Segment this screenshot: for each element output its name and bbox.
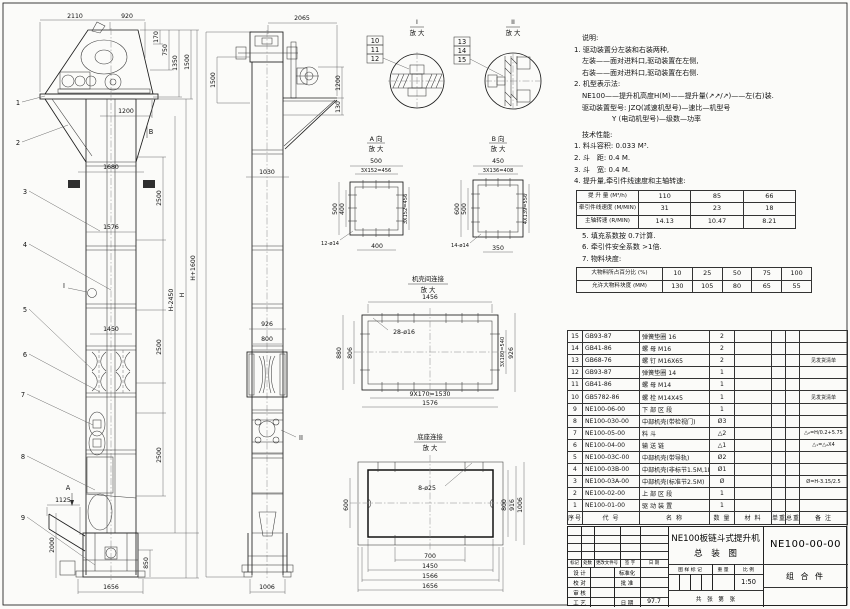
bom-material [735,476,772,488]
bom-unit-weight [772,379,786,391]
spec-value: 85 [691,190,743,203]
bom-unit-weight [772,464,786,476]
bom-note [800,415,848,427]
bom-code: NE100-02-00 [583,488,640,500]
bom-material [735,355,772,367]
date-value: 97.7 [640,598,668,605]
bom-no: 9 [568,403,583,415]
bom-code: NE100-05-00 [583,427,640,439]
dim-b-holes: 14-ø14 [451,243,469,249]
spec-value: 105 [692,280,722,293]
balloon-11: 11 [371,46,379,54]
balloon-14: 14 [458,47,466,55]
bom-unit-weight [772,415,786,427]
bom-total-weight [786,464,800,476]
bom-code: NE100-030-00 [583,415,640,427]
detail-case-joint-view: 机壳间连接 放 大 1456 28-ø16 880 806 3X180=540 … [336,274,515,407]
bom-qty: 2 [710,355,735,367]
bom-material [735,403,772,415]
bom-header-row: 序号代 号名 称数 量材 料单重总重备 注 [568,512,848,524]
bom-qty: 1 [710,500,735,512]
bom-total-weight [786,439,800,451]
bom-part-name: 输 送 链 [640,439,710,451]
rev-h-mark: 标记 [568,560,581,566]
bom-code: GB93-87 [583,367,640,379]
note-line: 2. 机型表示法: [568,79,848,91]
tech-line: 6. 牵引件安全系数 >1倍. [568,242,848,254]
bom-row: 1NE100-01-00驱 动 装 置1 [568,500,848,512]
title-block: 标记 处数 更改文件号 签 字 日 期 设 计 标准化 校 对 批 准 审 核 … [567,526,847,606]
dim-case-holes: 28-ø16 [393,329,415,336]
bom-code: NE100-01-00 [583,500,640,512]
spec-label: 提 升 量 (M³/h) [577,190,639,203]
dim-base-holes: 8-ø25 [418,485,436,492]
bom-no: 8 [568,415,583,427]
bom-part-name: 中部机壳(带导轨) [640,451,710,463]
bom-row: 2NE100-02-00上 部 区 段1 [568,488,848,500]
bom-row: 10GB5782-86螺 栓 M14X451见发货清单 [568,391,848,403]
bom-total-weight [786,379,800,391]
part-type: 组 合 件 [763,571,848,582]
mark-label: 图 样 标 记 [668,566,712,573]
spec-value: 55 [782,280,812,293]
dim-base-1450: 1450 [422,563,438,570]
detail-b-view: B 向 放 大 450 3X136=408 600 500 4X139=556 … [451,134,529,252]
bom-unit-weight [772,439,786,451]
note-line: Y (电动机型号)—级数—功率 [568,114,848,126]
dim-1350: 1350 [172,55,179,71]
bom-part-name: 螺 栓 M14X45 [640,391,710,403]
bom-material [735,427,772,439]
bom-total-weight [786,367,800,379]
bom-total-weight [786,427,800,439]
dim-case-1576: 1576 [422,400,438,407]
spec-value: 130 [663,280,693,293]
dim-case-540: 3X180=540 [500,337,506,367]
detail-i-title: I [416,18,418,26]
bom-code: GB68-76 [583,355,640,367]
bom-note: Ø=H-3.15/2.5 [800,476,848,488]
bom-part-name: 弹簧垫圈 16 [640,331,710,343]
note-line: 1. 驱动装置分左装和右装两种, [568,45,848,57]
bom-part-name: 螺 钉 M16X65 [640,355,710,367]
spec-value: 100 [782,268,812,281]
bom-code: GB41-86 [583,379,640,391]
bom-code: NE100-03C-00 [583,451,640,463]
bom-note [800,500,848,512]
spec-label: 大物料所占百分比 (%) [577,268,663,281]
tech-heading: 技术性能: [568,130,848,142]
detail-i-magnify: 放 大 [410,28,425,37]
detail-b-magnify: 放 大 [491,144,506,153]
inspection-door [87,457,113,493]
role-review: 审 核 [569,589,590,597]
bom-unit-weight [772,331,786,343]
bom-no: 14 [568,343,583,355]
bom-total-weight [786,343,800,355]
bom-qty: Ø2 [710,451,735,463]
bom-row: 8NE100-030-00中部机壳(带检视门)Ø3 [568,415,848,427]
balloon-box-10-12: 10 11 12 [367,36,409,69]
dim-b-556: 4X139=556 [523,194,529,224]
bom-code: NE100-03B-00 [583,464,640,476]
bom-part-name: 弹簧垫圈 14 [640,367,710,379]
detail-ii-magnify: 放 大 [506,28,521,37]
bom-material [735,439,772,451]
bom-part-name: 螺 母 M14 [640,379,710,391]
tech-line: 1. 料斗容积: 0.033 M³. [568,141,848,153]
drawing-sheet: { "notes": { "heading": "说明:", "lines": … [0,0,850,609]
dim-1125: 1125 [55,497,71,504]
balloon-7: 7 [21,391,25,399]
drawing-number: NE100-00-00 [763,539,848,550]
bom-unit-weight [772,476,786,488]
dim-800: 800 [261,336,273,343]
scale-value: 1:50 [734,578,763,586]
dim-case-880: 880 [336,347,343,359]
detail-base-joint-view: 底座连接 放 大 8-ø25 600 800 916 1006 700 1450… [343,432,524,592]
bom-qty: 1 [710,403,735,415]
bom-note: 见发货清单 [800,391,848,403]
rev-h-sign: 签 字 [620,560,640,566]
detail-a-title: A 向 [370,134,383,143]
bom-part-name: 驱 动 装 置 [640,500,710,512]
bom-material [735,391,772,403]
bom-no: 13 [568,355,583,367]
bom-row: 7NE100-05-00料 斗△2△₂=H/0.2+5.75 [568,427,848,439]
tech-line: 4. 提升量,牵引件线速度和主轴转速: [568,176,848,188]
balloon-box-13-15: 13 14 15 [454,37,503,76]
dim-case-806: 806 [347,347,354,359]
bom-row: 3NE100-03A-00中部机壳(标准节2.5M)ØØ=H-3.15/2.5 [568,476,848,488]
bom-material [735,451,772,463]
role-approve: 批 准 [614,579,640,587]
bom-no: 12 [568,367,583,379]
bom-row: 4NE100-03B-00中部机壳(非标节1.5M,1M)Ø1 [568,464,848,476]
bom-header-cell: 名 称 [640,512,710,524]
bom-total-weight [786,403,800,415]
bom-header-cell: 序号 [568,512,583,524]
bom-row: 13GB68-76螺 钉 M16X652见发货清单 [568,355,848,367]
bom-note [800,331,848,343]
role-date-label: 日 期 [614,599,640,607]
bom-material [735,331,772,343]
bom-unit-weight [772,355,786,367]
revision-area: 标记 处数 更改文件号 签 字 日 期 设 计 标准化 校 对 批 准 审 核 … [568,527,668,607]
title-area: NE100板链斗式提升机 总 装 图 图 样 标 记 重 量 比 例 1:50 … [668,527,763,607]
bom-unit-weight [772,488,786,500]
boot-section [60,533,145,577]
bom-no: 11 [568,379,583,391]
dim-base-600: 600 [343,499,350,511]
bom-note [800,343,848,355]
side-boot [242,533,293,577]
bom-total-weight [786,500,800,512]
dim-1006: 1006 [259,584,275,591]
front-dim-lines [40,20,199,594]
dim-a-456r: 3X152=456 [403,194,409,224]
spec-value: 75 [752,268,782,281]
bom-qty: 2 [710,343,735,355]
note-line: 右装——面对进料口,驱动装置在右侧. [568,68,848,80]
detail-case-title: 机壳间连接 [412,274,445,283]
dim-1200s: 1200 [335,75,342,91]
side-dim-lines [217,23,344,594]
bom-unit-weight [772,500,786,512]
bom-part-name: 中部机壳(标准节2.5M) [640,476,710,488]
bom-material [735,415,772,427]
dim-926: 926 [261,321,273,328]
spec-row: 大物料所占百分比 (%)10255075100 [577,268,812,281]
detail-i-label: I [63,282,65,290]
detail-ii-view: II 放 大 13 14 15 [454,18,541,109]
dim-a-500l: 500 [332,203,339,215]
bom-no: 10 [568,391,583,403]
dim-base-916: 916 [509,499,516,511]
spec-row: 允许大物料块度 (MM)130105806555 [577,280,812,293]
rev-h-doc: 更改文件号 [594,560,620,566]
bom-note: 见发货清单 [800,355,848,367]
dim-1450: 1450 [103,326,119,333]
balloon-12: 12 [371,55,379,63]
balloon-10: 10 [371,37,379,45]
role-process: 工 艺 [569,599,590,607]
dim-130: 130 [335,101,342,113]
dim-case-1456: 1456 [422,294,438,301]
bom-row: 9NE100-06-00下 部 区 段1 [568,403,848,415]
scale-label: 比 例 [734,566,763,573]
spec-value: 25 [692,268,722,281]
drawing-title-line1: NE100板链斗式提升机 [668,532,763,544]
bom-row: 12GB93-87弹簧垫圈 141 [568,367,848,379]
bom-material [735,464,772,476]
weight-label: 重 量 [712,566,734,573]
bom-code: GB93-87 [583,331,640,343]
dim-h1600: H+1600 [190,255,197,281]
bom-material [735,343,772,355]
side-elevation-view: II 2065 1500 1200 130 1030 926 800 1006 [206,15,344,594]
bom-note [800,464,848,476]
bom-total-weight [786,415,800,427]
balloon-13: 13 [458,38,466,46]
spec-value: 23 [691,203,743,216]
spec-value: 66 [743,190,795,203]
spec-value: 8.21 [743,215,795,228]
bom-no: 7 [568,427,583,439]
detail-case-magnify: 放 大 [421,285,436,294]
detail-ii-pointer: II [299,434,303,442]
bom-code: GB5782-86 [583,391,640,403]
bom-unit-weight [772,427,786,439]
number-area: NE100-00-00 组 合 件 [763,527,848,607]
dim-a-456t: 3X152=456 [361,168,391,174]
spec-value: 50 [722,268,752,281]
bom-note: △₂=H/0.2+5.75 [800,427,848,439]
dim-1656: 1656 [103,584,119,591]
bom-material [735,379,772,391]
spec-value: 110 [639,190,691,203]
bom-note: △₁=△₂X4 [800,439,848,451]
bom-note [800,403,848,415]
balloon-6: 6 [23,351,27,359]
dim-2000: 2000 [49,537,56,553]
bolt-ticks [378,462,483,545]
bom-no: 15 [568,331,583,343]
dim-850: 850 [143,557,150,569]
spec-value: 31 [639,203,691,216]
spec-row: 牵引件线速度 (M/MIN)312318 [577,203,796,216]
front-elevation-view: 2110 920 170 750 1350 1500 1200 1680 157… [16,13,199,594]
bom-total-weight [786,355,800,367]
dim-a-400l: 400 [339,203,346,215]
view-arrow-b: B [149,128,154,136]
bom-qty: 1 [710,379,735,391]
detail-ii-title: II [511,18,515,26]
bom-no: 5 [568,451,583,463]
dim-1500: 1500 [184,54,191,70]
bom-material [735,367,772,379]
role-std: 标准化 [614,569,640,577]
bom-unit-weight [772,451,786,463]
dim-b-350: 350 [492,245,504,252]
dim-750: 750 [162,44,169,56]
dim-1576: 1576 [103,224,119,231]
notes-panel: 说明: 1. 驱动装置分左装和右装两种, 左装——面对进料口,驱动装置在左侧, … [568,33,848,293]
detail-i-marker [88,289,97,298]
bom-total-weight [786,451,800,463]
bom-unit-weight [772,391,786,403]
bom-qty: 1 [710,367,735,379]
bom-header-cell: 总重 [786,512,800,524]
bom-part-name: 下 部 区 段 [640,403,710,415]
dim-base-1656: 1656 [422,583,438,590]
spec-value: 10 [663,268,693,281]
bom-row: 14GB41-86螺 母 M162 [568,343,848,355]
note-line: 左装——面对进料口,驱动装置在左侧, [568,56,848,68]
balloon-2: 2 [16,139,20,147]
side-sprocket-section [252,413,283,453]
bom-part-name: 料 斗 [640,427,710,439]
bom-code: GB41-86 [583,343,640,355]
bom-part-name: 上 部 区 段 [640,488,710,500]
tech-line: 3. 斗 宽: 0.4 M. [568,165,848,177]
bom-qty: Ø1 [710,464,735,476]
bom-qty: △2 [710,427,735,439]
bom-part-name: 中部机壳(带检视门) [640,415,710,427]
bom-total-weight [786,331,800,343]
spec-label: 允许大物料块度 (MM) [577,280,663,293]
sheet-label: 共 张 第 张 [668,595,763,603]
side-door [252,458,283,493]
bom-qty: 1 [710,488,735,500]
bom-no: 6 [568,439,583,451]
role-check: 校 对 [569,579,590,587]
bolt-ticks [471,178,525,239]
detail-b-title: B 向 [492,134,505,143]
spec-value: 10.47 [691,215,743,228]
bom-row: 11GB41-86螺 母 M141 [568,379,848,391]
dim-b-408: 3X136=408 [483,168,513,174]
rev-h-count: 处数 [581,560,594,566]
spec-value: 65 [752,280,782,293]
take-up-wheel [88,494,112,530]
dim-a-holes: 12-ø14 [321,241,339,247]
spec-value: 14.13 [639,215,691,228]
bom-no: 4 [568,464,583,476]
bucket-outline [259,512,276,536]
spec-value: 18 [743,203,795,216]
bom-unit-weight [772,367,786,379]
balloon-8: 8 [21,453,25,461]
bom-note [800,451,848,463]
bom-no: 3 [568,476,583,488]
dim-1030: 1030 [259,169,275,176]
wall-bracket-right [143,180,155,188]
bom-header-cell: 代 号 [583,512,640,524]
notes-heading: 说明: [568,33,848,45]
balloon-4: 4 [23,241,27,249]
bom-header-cell: 单重 [772,512,786,524]
capacity-speed-table: 提 升 量 (M³/h)1108566牵引件线速度 (M/MIN)312318主… [576,190,796,229]
bom-qty: △1 [710,439,735,451]
bom-material [735,500,772,512]
dim-h-2450: H-2450 [168,289,175,312]
drawing-title-line2: 总 装 图 [668,547,763,559]
take-up-bolts [89,412,105,455]
dim-a-400b: 400 [371,243,383,250]
dim-2500b: 2500 [156,339,163,355]
dim-base-700: 700 [424,553,436,560]
bom-part-name: 螺 母 M16 [640,343,710,355]
detail-a-view: A 向 放 大 500 3X152=456 500 400 3X152=456 … [321,134,409,250]
balloon-9: 9 [21,514,25,522]
bom-header-cell: 数 量 [710,512,735,524]
bom-note [800,379,848,391]
dim-2065: 2065 [294,15,310,22]
spec-row: 提 升 量 (M³/h)1108566 [577,190,796,203]
bom-unit-weight [772,403,786,415]
dim-920: 920 [121,13,133,20]
bom-code: NE100-03A-00 [583,476,640,488]
bill-of-materials: 15GB93-87弹簧垫圈 16214GB41-86螺 母 M16213GB68… [567,330,847,525]
dim-170: 170 [153,31,160,43]
bom-material [735,488,772,500]
bom-total-weight [786,488,800,500]
dim-b-450: 450 [492,158,504,165]
note-line: NE100——提升机高度H(M)——提升量(↗↗/↗)——左(右)装. [568,91,848,103]
bom-qty: Ø [710,476,735,488]
tech-line: 2. 斗 距: 0.4 M. [568,153,848,165]
bom-qty: 2 [710,331,735,343]
bom-row: 5NE100-03C-00中部机壳(带导轨)Ø2 [568,451,848,463]
dim-a-500t: 500 [370,158,382,165]
bom-note [800,367,848,379]
dim-1200: 1200 [118,108,134,115]
dim-2500c: 2500 [156,447,163,463]
dim-2110: 2110 [67,13,83,20]
dim-base-1006: 1006 [517,497,524,513]
tech-line: 5. 填充系数按 0.7计算. [568,231,848,243]
bom-header-cell: 材 料 [735,512,772,524]
balloon-5: 5 [23,306,27,314]
dim-case-1530: 9X170=1530 [410,391,451,398]
view-arrow-a: A [66,484,71,492]
bom-row: 15GB93-87弹簧垫圈 162 [568,331,848,343]
balloon-1: 1 [16,99,20,107]
dim-b-500: 500 [461,203,468,215]
dim-b-600: 600 [454,203,461,215]
bom-header-cell: 备 注 [800,512,848,524]
